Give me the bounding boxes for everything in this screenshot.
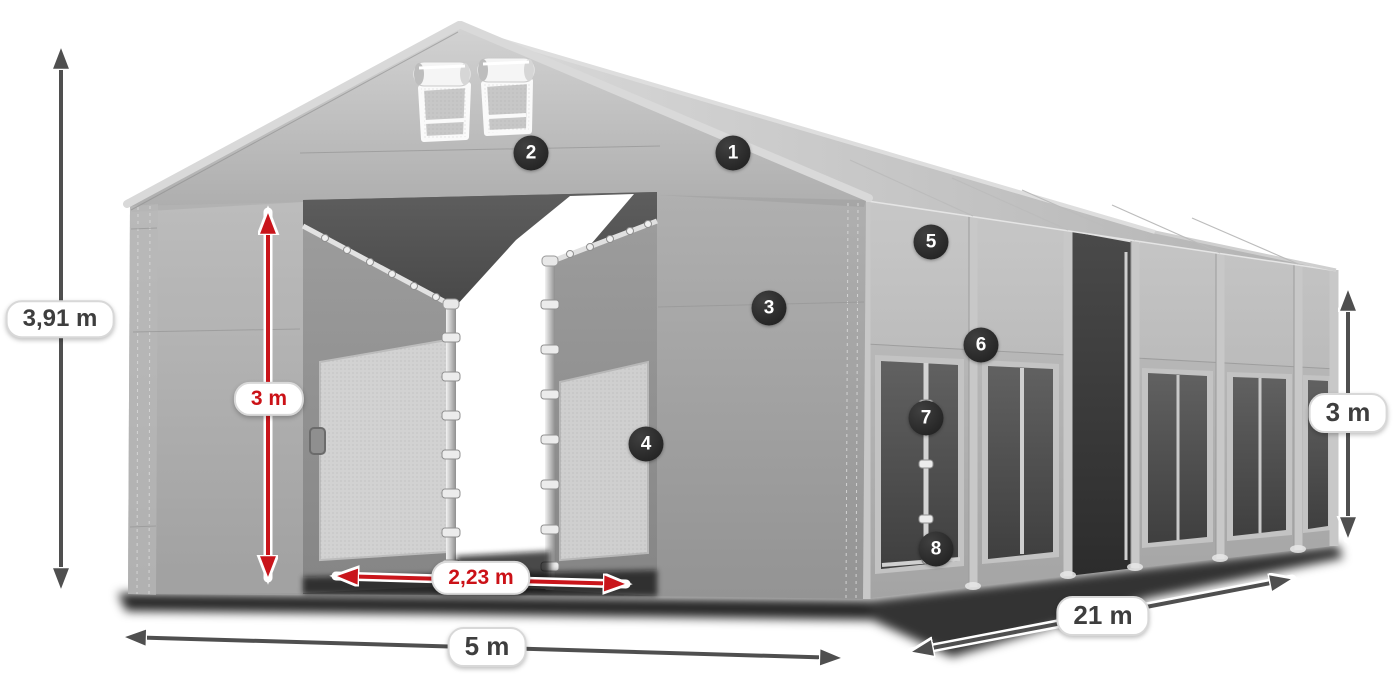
entrance-handle [310,428,325,454]
callout-7: 7 [909,401,944,436]
callout-2: 2 [514,136,549,171]
dimension-label-side-length: 21 m [1056,596,1149,636]
dimension-label-entrance-height: 3 m [234,382,304,416]
callout-1: 1 [716,136,751,171]
callout-6: 6 [964,328,999,363]
callout-3: 3 [752,291,787,326]
tent-dimension-diagram: 3,91 m 3 m 2,23 m 5 m 21 m 3 m 1 2 3 4 5… [0,0,1400,700]
vent-flap-left [413,62,471,139]
vent-flap-right [477,58,535,133]
inner-gate-right [541,221,657,597]
dimension-label-front-width: 5 m [448,627,527,667]
dimension-label-total-height: 3,91 m [6,300,115,338]
callout-8: 8 [919,532,954,567]
front-entrance [303,192,657,596]
callout-4: 4 [629,427,664,462]
dimension-label-entrance-width: 2,23 m [431,561,530,595]
callout-5: 5 [914,225,949,260]
tent-illustration [0,0,1400,700]
dimension-label-side-height: 3 m [1309,393,1388,433]
